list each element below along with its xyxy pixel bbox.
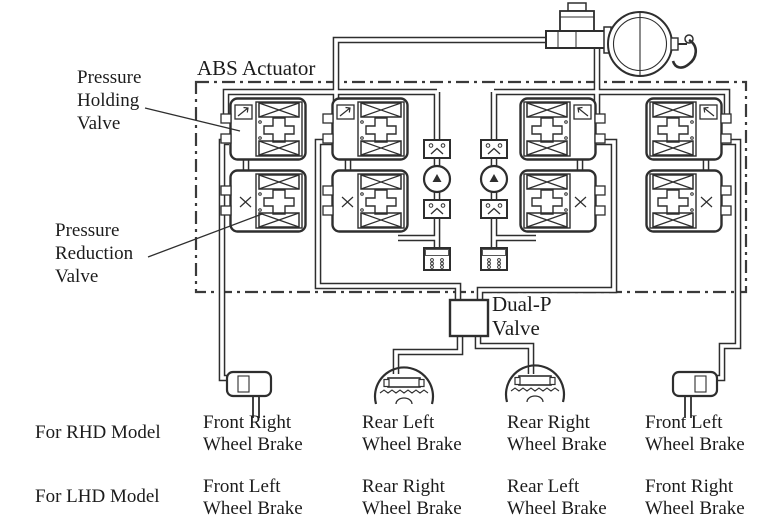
label-line: Wheel Brake <box>645 434 745 456</box>
label-line: Rear Right <box>507 412 607 434</box>
dual-p-valve-label: Dual-P Valve <box>492 292 552 340</box>
brake-booster <box>608 12 678 76</box>
label-line: Wheel Brake <box>203 498 303 520</box>
brake-position-label: Front Left Wheel Brake <box>645 412 745 456</box>
drum-brake-left <box>375 367 433 404</box>
label-line: Front Left <box>203 476 303 498</box>
label-line: Valve <box>77 112 141 135</box>
drum-brake-right <box>506 365 564 402</box>
check-valve-right-bottom <box>481 200 507 218</box>
pressure-reduction-valve-inner-left <box>323 171 408 232</box>
pressure-reduction-leader-line <box>148 214 262 257</box>
brake-position-label: Rear Right Wheel Brake <box>362 476 462 520</box>
model-row-label-rhd: For RHD Model <box>35 422 161 444</box>
reservoir-right <box>481 248 507 270</box>
dual-p-valve-box <box>450 300 488 336</box>
label-line: Wheel Brake <box>203 434 303 456</box>
label-line: Valve <box>55 265 133 288</box>
label-line: Valve <box>492 316 552 340</box>
pump-left <box>424 166 450 192</box>
label-line: Front Right <box>203 412 303 434</box>
check-valve-left-top <box>424 140 450 158</box>
abs-actuator-label: ABS Actuator <box>197 56 315 80</box>
label-line: Wheel Brake <box>362 434 462 456</box>
label-line: Front Left <box>645 412 745 434</box>
pressure-holding-valve-inner-right <box>521 99 606 160</box>
pressure-holding-valve-label: Pressure Holding Valve <box>77 66 141 135</box>
master-cylinder <box>546 3 611 53</box>
brake-position-label: Front Right Wheel Brake <box>645 476 745 520</box>
abs-hydraulic-diagram: ABS Actuator Pressure Holding Valve Pres… <box>0 0 765 523</box>
pressure-reduction-valve-label: Pressure Reduction Valve <box>55 219 133 288</box>
label-line: Wheel Brake <box>507 498 607 520</box>
check-valve-right-top <box>481 140 507 158</box>
pressure-reduction-valve-outer-right <box>647 171 732 232</box>
brake-position-label: Front Right Wheel Brake <box>203 412 303 456</box>
pressure-reduction-valve-inner-right <box>521 171 606 232</box>
label-line: Wheel Brake <box>507 434 607 456</box>
pressure-holding-valve-outer-right <box>647 99 732 160</box>
check-valve-left-bottom <box>424 200 450 218</box>
brake-position-label: Front Left Wheel Brake <box>203 476 303 520</box>
label-line: Front Right <box>645 476 745 498</box>
label-line: Rear Left <box>507 476 607 498</box>
label-line: Dual-P <box>492 292 552 316</box>
brake-position-label: Rear Left Wheel Brake <box>362 412 462 456</box>
label-line: Rear Right <box>362 476 462 498</box>
label-line: Rear Left <box>362 412 462 434</box>
model-row-label-lhd: For LHD Model <box>35 486 160 508</box>
label-line: Holding <box>77 89 141 112</box>
label-line: Pressure <box>77 66 141 89</box>
brake-position-label: Rear Right Wheel Brake <box>507 412 607 456</box>
pump-right <box>481 166 507 192</box>
pressure-reduction-valve-outer-left <box>221 171 306 232</box>
pressure-holding-valve-inner-left <box>323 99 408 160</box>
brake-position-label: Rear Left Wheel Brake <box>507 476 607 520</box>
label-line: Pressure <box>55 219 133 242</box>
reservoir-left <box>424 248 450 270</box>
label-line: Wheel Brake <box>362 498 462 520</box>
label-line: Reduction <box>55 242 133 265</box>
label-line: Wheel Brake <box>645 498 745 520</box>
